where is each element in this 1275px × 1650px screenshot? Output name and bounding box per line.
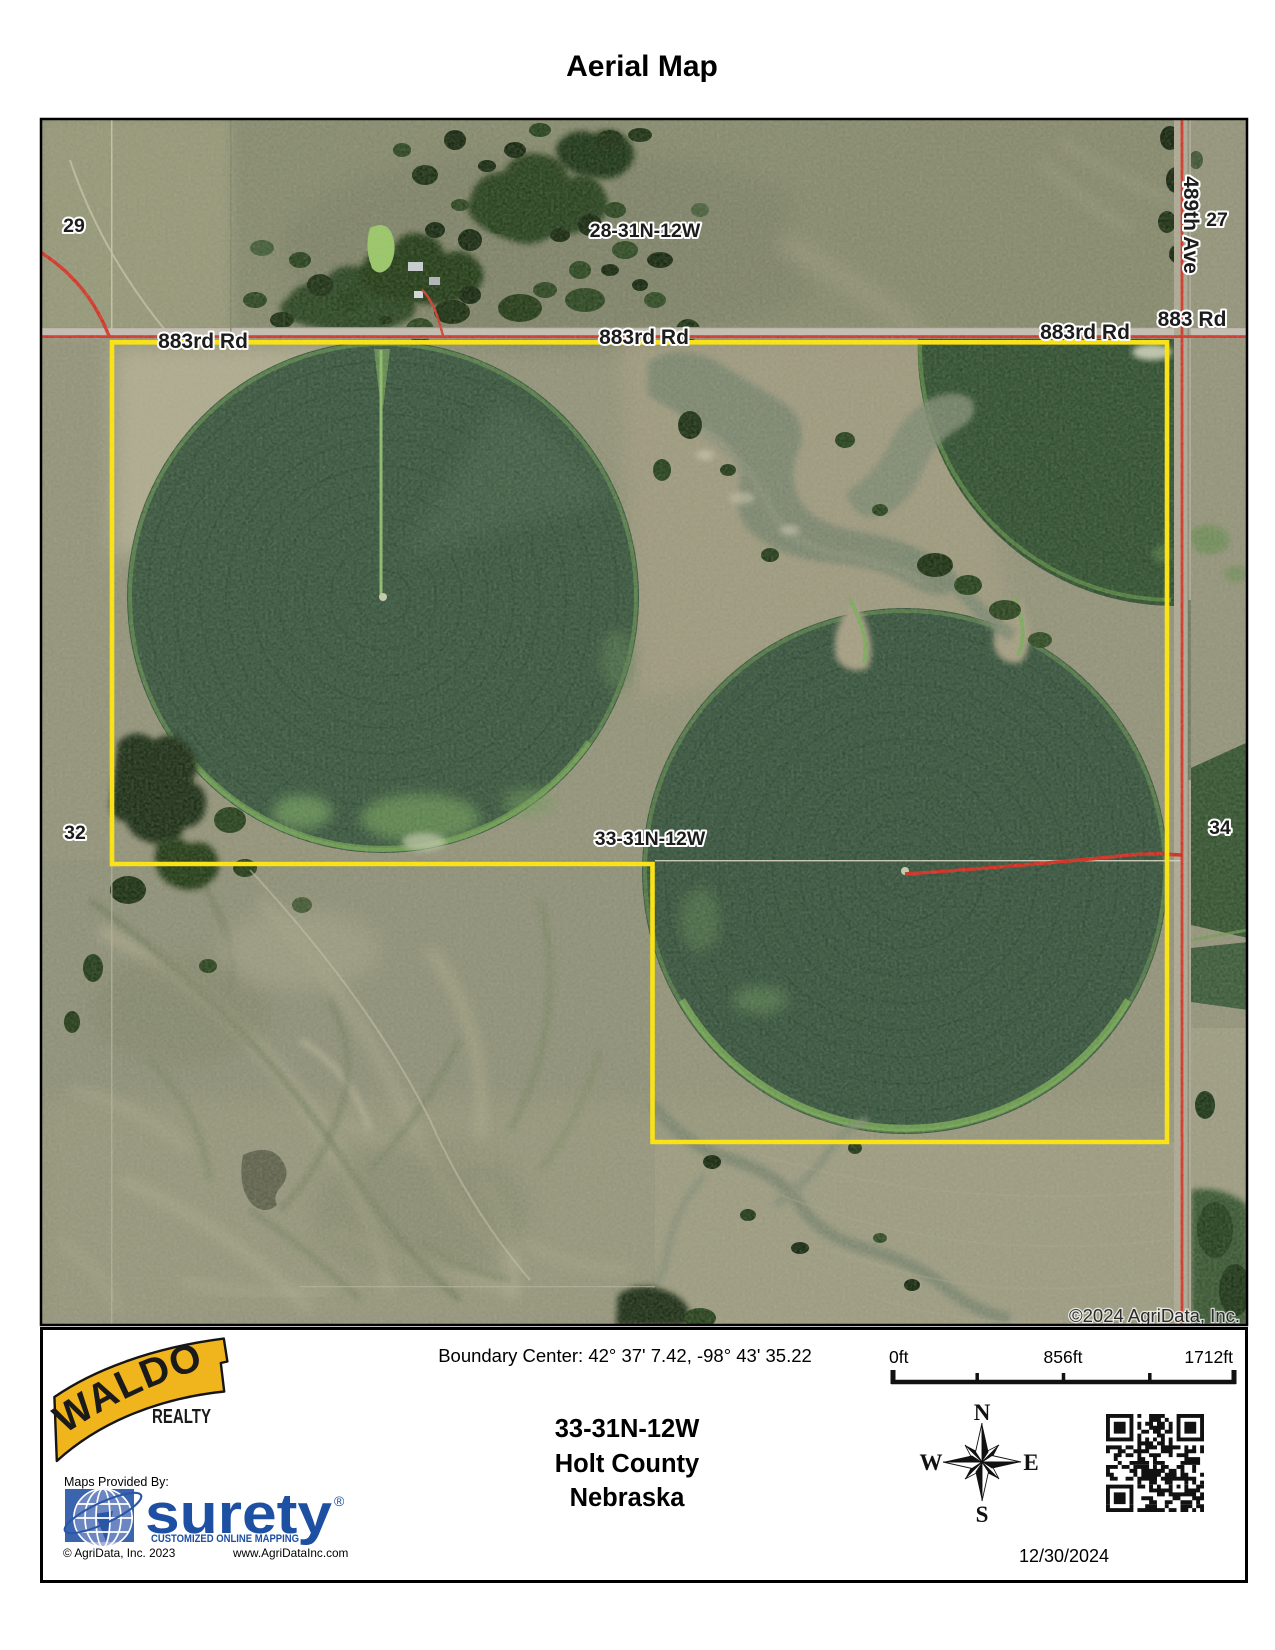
svg-text:12/30/2024: 12/30/2024 [1019, 1546, 1109, 1566]
svg-text:®: ® [334, 1493, 345, 1509]
svg-text:883rd Rd: 883rd Rd [1040, 321, 1130, 344]
svg-text:856ft: 856ft [1044, 1347, 1083, 1367]
svg-text:©2024 AgriData, Inc.: ©2024 AgriData, Inc. [1069, 1305, 1240, 1326]
svg-text:883rd Rd: 883rd Rd [158, 330, 248, 353]
svg-text:883 Rd: 883 Rd [1158, 308, 1227, 331]
svg-text:29: 29 [63, 215, 85, 237]
svg-text:REALTY: REALTY [152, 1406, 211, 1428]
svg-text:489th Ave: 489th Ave [1179, 176, 1202, 274]
svg-text:Holt County: Holt County [555, 1450, 700, 1478]
svg-text:34: 34 [1209, 817, 1231, 839]
svg-text:28-31N-12W: 28-31N-12W [590, 220, 701, 242]
svg-text:www.AgriDataInc.com: www.AgriDataInc.com [232, 1546, 349, 1560]
svg-text:S: S [976, 1502, 989, 1527]
svg-text:Aerial Map: Aerial Map [566, 50, 718, 83]
svg-text:© AgriData, Inc. 2023: © AgriData, Inc. 2023 [63, 1546, 176, 1560]
svg-text:33-31N-12W: 33-31N-12W [595, 828, 706, 850]
svg-text:1712ft: 1712ft [1184, 1347, 1233, 1367]
svg-text:Boundary Center: 42° 37' 7.42,: Boundary Center: 42° 37' 7.42, -98° 43' … [438, 1345, 812, 1366]
svg-text:Nebraska: Nebraska [570, 1484, 686, 1512]
svg-text:E: E [1023, 1450, 1038, 1475]
svg-text:CUSTOMIZED ONLINE MAPPING: CUSTOMIZED ONLINE MAPPING [151, 1533, 299, 1545]
svg-text:32: 32 [64, 822, 86, 844]
svg-text:883rd Rd: 883rd Rd [599, 326, 689, 349]
svg-text:27: 27 [1206, 209, 1228, 231]
svg-text:0ft: 0ft [889, 1347, 909, 1367]
svg-text:33-31N-12W: 33-31N-12W [555, 1415, 700, 1443]
svg-text:W: W [920, 1450, 943, 1475]
svg-text:N: N [974, 1400, 991, 1425]
